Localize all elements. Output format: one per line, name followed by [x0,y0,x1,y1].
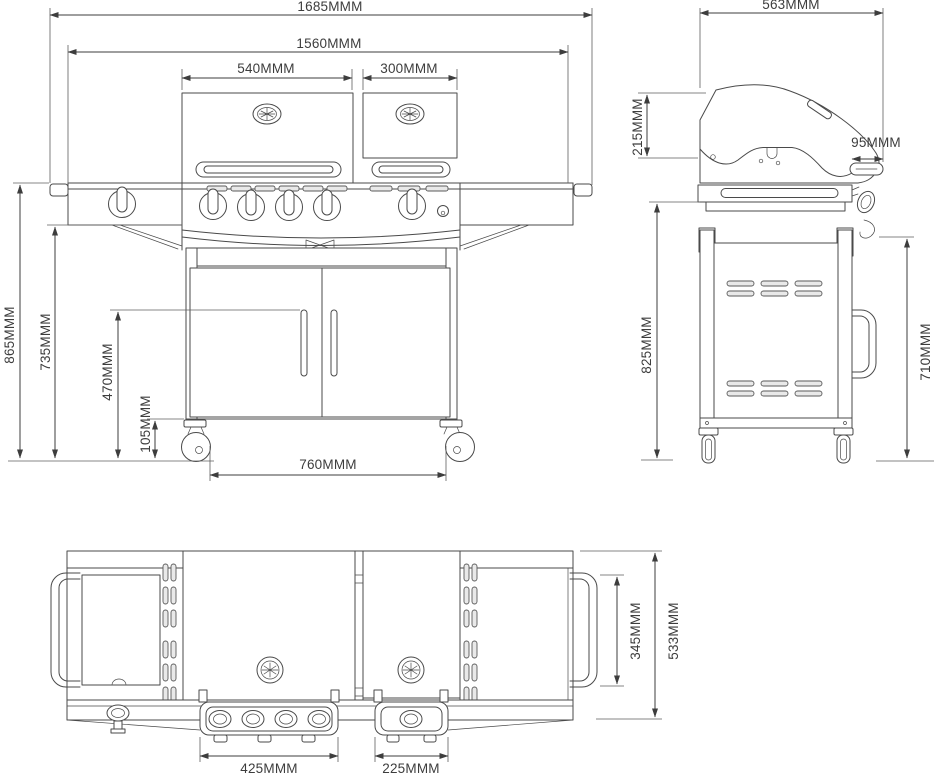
top-right-shelf [460,564,597,704]
top-view: 425MMM 225MMM 345MMM 533MMM [51,551,681,776]
top-lid-divider [355,551,363,700]
dim-label-main-lid-width: 540MMM [237,61,294,76]
dim-side-panel-height: 710MMM [876,237,934,461]
igniter-button [438,206,449,217]
dim-front-caster-height: 105MMM [138,395,184,458]
shelf-handle-right [570,573,597,687]
dim-side-lid-height: 215MMM [630,93,706,158]
caster-wheel-right [440,420,475,462]
dim-label-top-depth: 533MMM [666,602,681,659]
control-knob-3 [276,190,303,221]
dim-label-panel-height: 710MMM [918,323,933,380]
dim-label-overall-height: 865MMM [2,306,17,363]
side-view: 563MMM 215MMM 95MMM 825MMM 710MMM [630,0,934,463]
top-side-lid [363,551,460,698]
cabinet-doors [190,268,450,417]
dim-top-main-knob-panel: 425MMM [200,737,338,776]
caster-wheel-side-front [699,428,718,463]
side-cart [699,228,876,463]
dim-label-handle-length: 345MMM [628,602,643,659]
grease-hook [860,220,875,238]
front-side-lid [363,93,457,177]
side-burner-knob [109,187,136,218]
dim-label-side-worktop-height: 825MMM [639,316,654,373]
control-knob-2 [238,190,265,221]
dim-label-lid-height: 215MMM [630,98,645,155]
brand-badge-icon [398,657,424,683]
dim-label-side-knob-panel: 225MMM [382,761,439,776]
dim-label-worktop-height: 735MMM [38,313,53,370]
front-right-shelf-end [574,184,592,196]
side-lid-profile [700,85,883,183]
front-view: 1685MMM 1560MMM 540MMM 300MMM 865MMM 735… [2,0,592,481]
cutting-board [82,575,160,685]
control-knob-top-3 [275,711,297,728]
cart-leg-rear [838,230,852,428]
front-control-panel [109,183,461,250]
door-handle-left [301,310,307,376]
front-left-shelf-end [50,184,68,196]
cart-side-handle [852,310,876,378]
side-burner-knob-top-panel [400,711,422,728]
dim-label-caster-height: 105MMM [138,395,153,452]
dim-front-main-lid-width: 540MMM [182,61,352,90]
dim-label-side-lid-width: 300MMM [380,61,437,76]
bbq-grill-dimension-drawing: 1685MMM 1560MMM 540MMM 300MMM 865MMM 735… [0,0,936,776]
technical-drawing-page: 1685MMM 1560MMM 540MMM 300MMM 865MMM 735… [0,0,936,776]
control-knob-1 [200,189,227,220]
dim-front-worktop-height: 735MMM [38,225,182,458]
caster-wheel-side-rear [834,428,853,463]
caster-wheel-left [182,420,211,462]
dim-top-handle-length: 345MMM [600,575,643,686]
dim-label-hood-span: 1560MMM [296,36,361,51]
dim-front-caster-track: 760MMM [210,446,446,481]
cart-bottom-rail [700,418,852,428]
main-lid-handle [196,162,341,177]
dim-label-caster-track: 760MMM [299,457,356,472]
control-knob-top-2 [242,711,264,728]
cart-leg-front [700,230,714,428]
side-control-knob [852,187,878,238]
brand-badge-icon [257,657,283,683]
control-knob-4 [314,190,341,221]
top-left-shelf [51,564,183,704]
dim-label-overall-width: 1685MMM [297,0,362,14]
dim-top-side-knob-panel: 225MMM [375,737,448,776]
side-lid-handle [372,162,450,177]
brand-badge-icon [396,104,424,124]
front-main-lid [182,93,353,183]
brand-badge-icon [253,104,281,124]
dim-label-door-handle-height: 470MMM [100,343,115,400]
dim-label-main-knob-panel: 425MMM [240,761,297,776]
dim-side-worktop-height: 825MMM [639,202,700,460]
side-worktop-tray [698,185,852,211]
dim-label-handle-depth: 95MMM [851,135,901,150]
front-cabinet [182,248,475,462]
dim-label-depth: 563MMM [762,0,819,12]
door-handle-right [331,310,337,376]
side-burner-knob-top [107,705,129,733]
control-knob-top-4 [308,711,330,728]
cabinet-top-rail [197,248,446,266]
dim-front-side-lid-width: 300MMM [363,61,457,90]
side-lid-knob [399,189,426,220]
top-main-lid [183,551,355,700]
control-knob-top-1 [209,711,231,728]
